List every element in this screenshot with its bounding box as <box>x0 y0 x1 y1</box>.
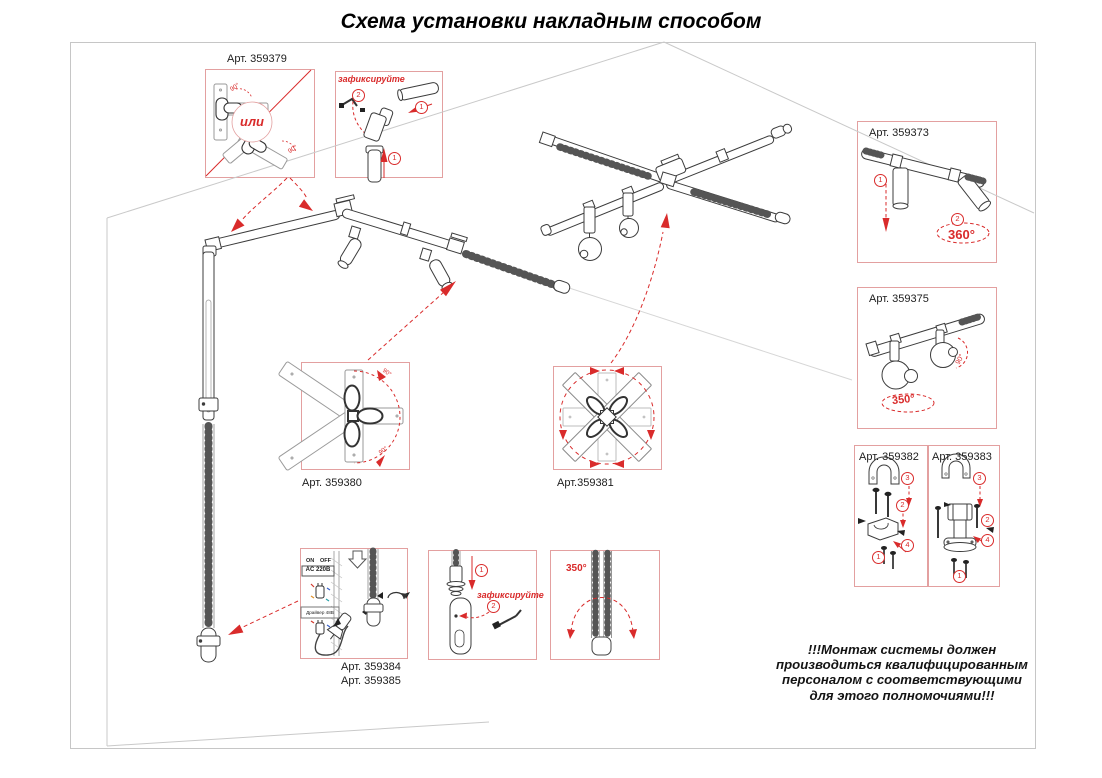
art-label-359382: Арт. 359382 <box>859 451 919 463</box>
step-2-badge: 2 <box>896 499 909 512</box>
callout-box-359384 <box>300 548 408 659</box>
art-label-359384: Арт. 359384 <box>341 661 401 673</box>
step-2-badge: 2 <box>352 89 365 102</box>
callout-box-359375 <box>857 287 997 429</box>
or-label: или <box>238 114 266 129</box>
angle-360-label: 360° <box>948 227 975 242</box>
switch-on-label: ON <box>306 558 314 564</box>
fix-top-label: зафиксируйте <box>338 74 405 84</box>
step-1-badge: 1 <box>388 152 401 165</box>
instruction-sheet: Схема установки накладным способом <box>0 0 1102 778</box>
art-label-359385: Арт. 359385 <box>341 675 401 687</box>
step-2-badge: 2 <box>951 213 964 226</box>
warning-line: !!!Монтаж системы должен <box>772 642 1032 657</box>
power-label: AC 220В <box>302 567 334 573</box>
angle-350-rotate-label: 350° <box>566 563 587 574</box>
art-label-359375: Арт. 359375 <box>869 293 929 305</box>
art-label-359379: Арт. 359379 <box>227 53 287 65</box>
driver-label: Драйвер 48В <box>301 610 339 615</box>
callout-box-359380 <box>301 362 410 470</box>
warning-line: для этого полномочиями!!! <box>772 688 1032 703</box>
step-3-badge: 3 <box>973 472 986 485</box>
art-label-359380: Арт. 359380 <box>302 477 362 489</box>
art-label-359373: Арт. 359373 <box>869 127 929 139</box>
installation-warning: !!!Монтаж системы должен производиться к… <box>772 642 1032 703</box>
callout-box-359373 <box>857 121 997 263</box>
step-1-badge: 1 <box>872 551 885 564</box>
step-3-badge: 3 <box>901 472 914 485</box>
art-label-359381: Арт.359381 <box>557 477 614 489</box>
step-2-badge: 2 <box>487 600 500 613</box>
page-title: Схема установки накладным способом <box>0 10 1102 34</box>
step-1-badge: 1 <box>415 101 428 114</box>
callout-box-359381 <box>553 366 662 470</box>
fix-bottom-label: зафиксируйте <box>477 590 544 600</box>
warning-line: персоналом с соответствующими <box>772 672 1032 687</box>
step-4-badge: 4 <box>901 539 914 552</box>
art-label-359383: Арт. 359383 <box>932 451 992 463</box>
step-1-badge: 1 <box>953 570 966 583</box>
step-1-badge: 1 <box>475 564 488 577</box>
warning-line: производиться квалифицированным <box>772 657 1032 672</box>
step-4-badge: 4 <box>981 534 994 547</box>
switch-off-label: OFF <box>320 558 331 564</box>
step-2-badge: 2 <box>981 514 994 527</box>
step-1-badge: 1 <box>874 174 887 187</box>
angle-350-label: 350° <box>891 393 915 407</box>
callout-box-359382 <box>854 445 929 587</box>
